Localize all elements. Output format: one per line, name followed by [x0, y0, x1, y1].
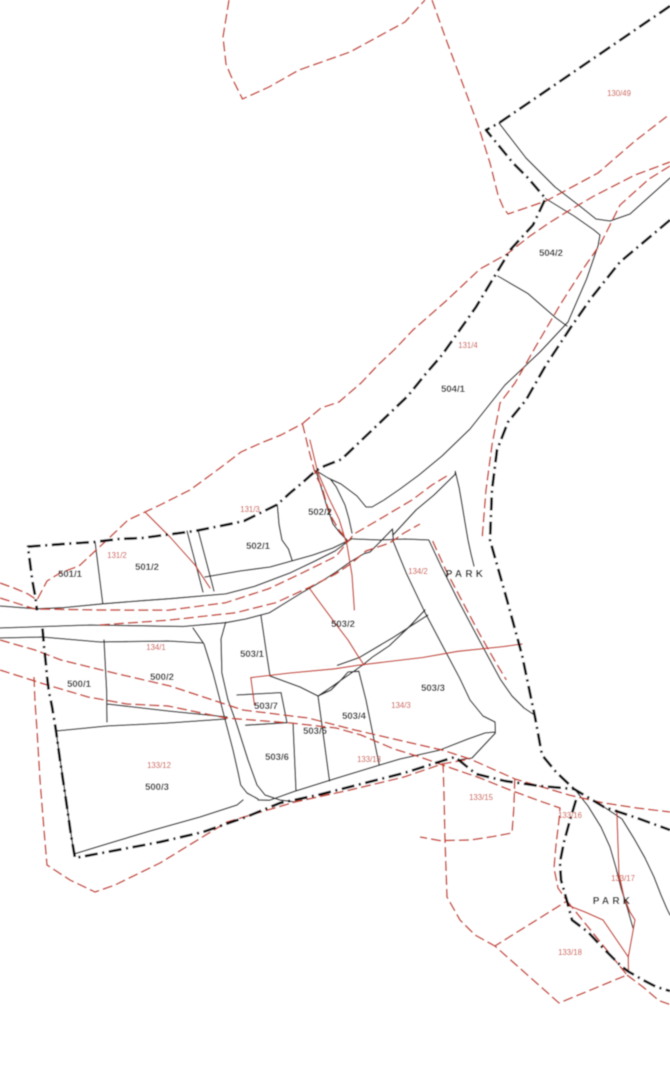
svg-text:501/2: 501/2 [135, 562, 159, 573]
svg-text:133/18: 133/18 [558, 948, 582, 957]
svg-text:504/1: 504/1 [441, 384, 465, 395]
svg-text:134/2: 134/2 [408, 567, 428, 576]
svg-text:500/1: 500/1 [67, 679, 91, 690]
svg-text:133/15: 133/15 [469, 793, 494, 802]
svg-text:131/3: 131/3 [240, 505, 260, 514]
svg-text:503/6: 503/6 [265, 752, 289, 763]
svg-text:500/3: 500/3 [145, 782, 169, 793]
svg-text:503/5: 503/5 [303, 726, 327, 737]
svg-text:133/12: 133/12 [147, 761, 171, 770]
svg-text:502/2: 502/2 [308, 507, 332, 518]
svg-text:502/1: 502/1 [246, 541, 270, 552]
svg-text:133/13: 133/13 [357, 755, 381, 764]
svg-text:PARK: PARK [446, 569, 486, 580]
svg-text:503/4: 503/4 [342, 711, 366, 722]
svg-text:503/1: 503/1 [240, 649, 264, 660]
svg-text:504/2: 504/2 [539, 248, 563, 259]
svg-text:134/3: 134/3 [391, 701, 411, 710]
svg-text:130/49: 130/49 [607, 89, 631, 98]
svg-text:500/2: 500/2 [150, 672, 174, 683]
svg-text:131/4: 131/4 [458, 341, 478, 350]
svg-text:131/2: 131/2 [107, 551, 127, 560]
svg-text:PARK: PARK [593, 896, 633, 907]
svg-text:503/7: 503/7 [254, 701, 278, 712]
svg-text:501/1: 501/1 [58, 569, 82, 580]
svg-text:134/1: 134/1 [146, 643, 166, 652]
svg-text:133/16: 133/16 [558, 811, 582, 820]
svg-text:503/3: 503/3 [421, 683, 445, 694]
svg-text:503/2: 503/2 [331, 619, 355, 630]
svg-text:133/17: 133/17 [611, 874, 635, 883]
